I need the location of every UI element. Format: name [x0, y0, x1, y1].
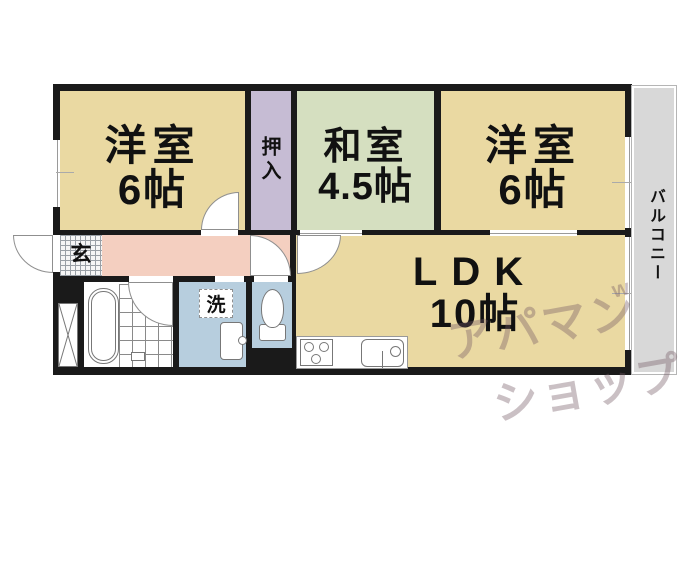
floorplan-page: 洗 バルコニー 洋室 6帖 和室 4.5帖 洋室 — [0, 0, 690, 575]
balcony-label: バルコニー — [641, 150, 667, 320]
washing-machine-knob-icon — [238, 336, 247, 345]
washroom-label: 洗 — [206, 290, 225, 317]
japanese-label: 和室 4.5帖 — [297, 128, 434, 207]
closet-label: 押入 — [258, 128, 284, 192]
pipe-space-cross-icon — [59, 304, 77, 366]
ldk-label: LDK 10帖 — [330, 252, 620, 335]
bathtub-icon — [88, 288, 119, 364]
door-opening-western1 — [201, 230, 238, 236]
japanese-size: 4.5帖 — [297, 168, 434, 208]
western1-size: 6帖 — [60, 168, 245, 212]
door-opening-toilet — [254, 276, 288, 282]
stove-icon — [300, 339, 333, 366]
western2-label: 洋室 6帖 — [441, 124, 625, 211]
toilet-bowl-icon — [261, 289, 284, 328]
bath-drain-icon — [131, 352, 145, 361]
ldk-name: LDK — [330, 252, 620, 294]
entry-door-arc — [13, 235, 53, 273]
door-opening-bathroom — [129, 276, 173, 282]
entrance-label: 玄 — [66, 244, 96, 266]
western1-name: 洋室 — [60, 124, 245, 168]
japanese-name: 和室 — [297, 128, 434, 168]
window-west — [53, 140, 60, 207]
western1-label: 洋室 6帖 — [60, 124, 245, 211]
washroom-label-box: 洗 — [199, 289, 233, 318]
sliding-door-western2 — [490, 230, 577, 236]
sink-icon — [361, 339, 404, 367]
western2-size: 6帖 — [441, 168, 625, 212]
door-opening-washroom — [215, 276, 244, 282]
western2-name: 洋室 — [441, 124, 625, 168]
entry-opening — [53, 235, 60, 272]
ldk-size: 10帖 — [330, 294, 620, 336]
pipe-space-box — [58, 303, 78, 367]
